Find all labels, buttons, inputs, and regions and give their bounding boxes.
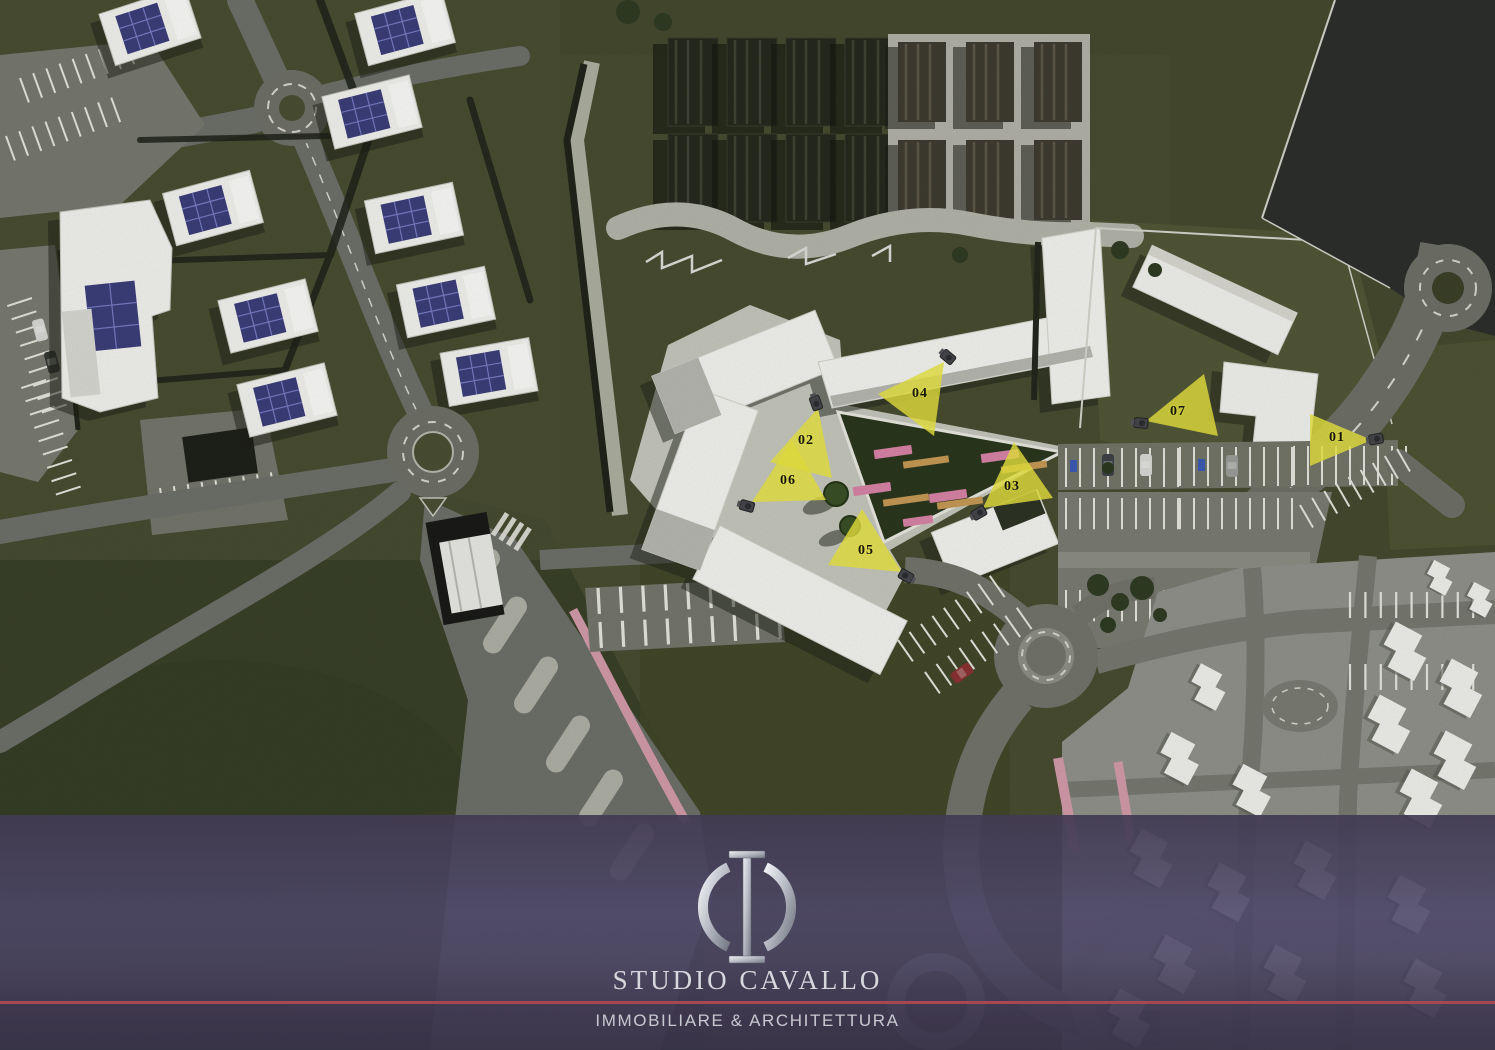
marker-label: 06 <box>780 473 796 489</box>
marker-label: 07 <box>1170 404 1186 420</box>
studio-cavallo-logo-icon <box>682 849 812 965</box>
marker-label: 03 <box>1004 479 1020 495</box>
view-marker-04: 04 <box>905 385 935 403</box>
brand-tagline: IMMOBILIARE & ARCHITETTURA <box>0 1011 1495 1031</box>
marker-label: 02 <box>798 433 814 449</box>
site-plan-page: 01 02 03 04 05 06 07 STUDIO CAVALLO IMMO… <box>0 0 1495 1050</box>
view-marker-03: 03 <box>997 478 1027 496</box>
accent-line <box>0 1001 1495 1004</box>
view-marker-07: 07 <box>1163 403 1193 421</box>
view-marker-05: 05 <box>851 542 881 560</box>
marker-label: 01 <box>1329 430 1345 446</box>
marker-label: 05 <box>858 543 874 559</box>
view-marker-06: 06 <box>773 472 803 490</box>
view-marker-01: 01 <box>1322 429 1352 447</box>
brand-name: STUDIO CAVALLO <box>0 965 1495 996</box>
marker-label: 04 <box>912 386 928 402</box>
view-marker-02: 02 <box>791 432 821 450</box>
footer-brand-band: STUDIO CAVALLO IMMOBILIARE & ARCHITETTUR… <box>0 815 1495 1050</box>
